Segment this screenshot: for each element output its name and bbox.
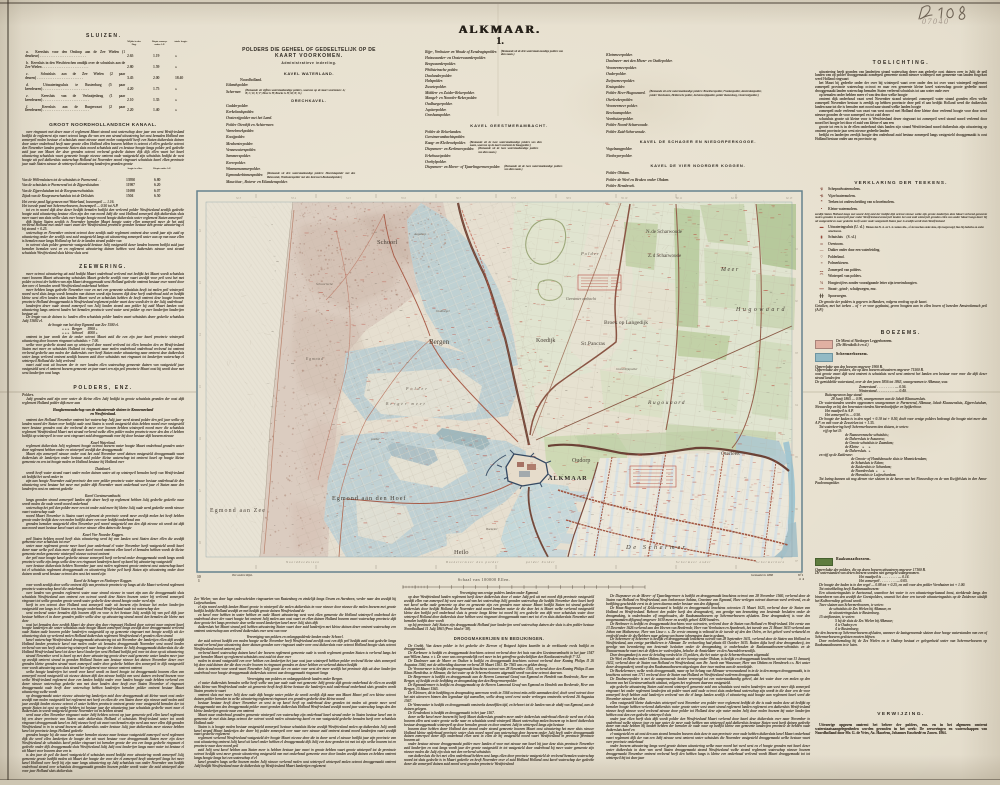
svg-text:Boekelermeer den polder: Boekelermeer den polder — [446, 560, 499, 564]
svg-text:polder Zuider: polder Zuider — [525, 560, 556, 564]
svg-text:Polder: Polder — [405, 386, 429, 391]
svg-text:Geestmer ambacht: Geestmer ambacht — [566, 296, 597, 301]
svg-text:Boekeler: Boekeler — [486, 527, 498, 531]
svg-text:Hugowaard: Hugowaard — [735, 307, 787, 313]
svg-text:52 3: 52 3 — [236, 197, 241, 200]
svg-text:55 6: 55 6 — [401, 197, 406, 200]
svg-text:59 10: 59 10 — [621, 197, 628, 200]
svg-text:57 8: 57 8 — [511, 197, 516, 200]
svg-text:S t .Pancras: S t .Pancras — [581, 341, 605, 347]
svg-text:Z. d Scharwoude: Z. d Scharwoude — [648, 254, 682, 259]
svg-text:53 4: 53 4 — [291, 197, 296, 200]
svg-text:N. de Scharwoude: N. de Scharwoude — [646, 230, 683, 235]
svg-text:P o l d e r: P o l d e r — [580, 251, 599, 256]
svg-text:Broek op Langedijk: Broek op Langedijk — [604, 320, 648, 326]
svg-text:56 7: 56 7 — [456, 197, 461, 200]
svg-text:Berger meer: Berger meer — [386, 402, 427, 406]
svg-text:ALKMAAR: ALKMAAR — [548, 475, 588, 482]
svg-text:54 5: 54 5 — [346, 197, 351, 200]
svg-text:58 9: 58 9 — [566, 197, 571, 200]
svg-text:Egmond: Egmond — [305, 357, 324, 361]
svg-text:Egmond aan den Hoef: Egmond aan den Hoef — [332, 495, 407, 502]
svg-text:Egmond aan Zee: Egmond aan Zee — [210, 508, 266, 514]
svg-text:Oudorp: Oudorp — [572, 458, 590, 464]
svg-text:61 12: 61 12 — [731, 197, 738, 200]
svg-text:Aagdorp: Aagdorp — [413, 232, 427, 236]
svg-text:Meer: Meer — [720, 267, 740, 273]
svg-text:Oterleek: Oterleek — [721, 451, 740, 457]
svg-text:Schoorl: Schoorl — [377, 239, 397, 246]
svg-text:Schermerhorn: Schermerhorn — [756, 560, 785, 564]
svg-text:polder: polder — [370, 437, 381, 441]
svg-text:Schoorlsche: Schoorlsche — [316, 282, 334, 286]
svg-text:Heilo: Heilo — [454, 549, 468, 556]
svg-text:Bergen: Bergen — [429, 338, 450, 346]
svg-text:De Schermer: De Schermer — [625, 544, 688, 551]
svg-text:Schermeer onder: Schermeer onder — [676, 560, 712, 564]
svg-text:Oosterdijkpolder: Oosterdijkpolder — [616, 367, 638, 371]
svg-text:Koedijk: Koedijk — [536, 338, 555, 344]
svg-text:NoordZeeduinen: NoordZeeduinen — [285, 560, 320, 564]
svg-text:Rugouaard: Rugouaard — [647, 400, 686, 406]
svg-text:62 13: 62 13 — [786, 197, 793, 200]
svg-text:60 11: 60 11 — [676, 197, 683, 200]
svg-text:Oudburger: Oudburger — [436, 309, 451, 313]
